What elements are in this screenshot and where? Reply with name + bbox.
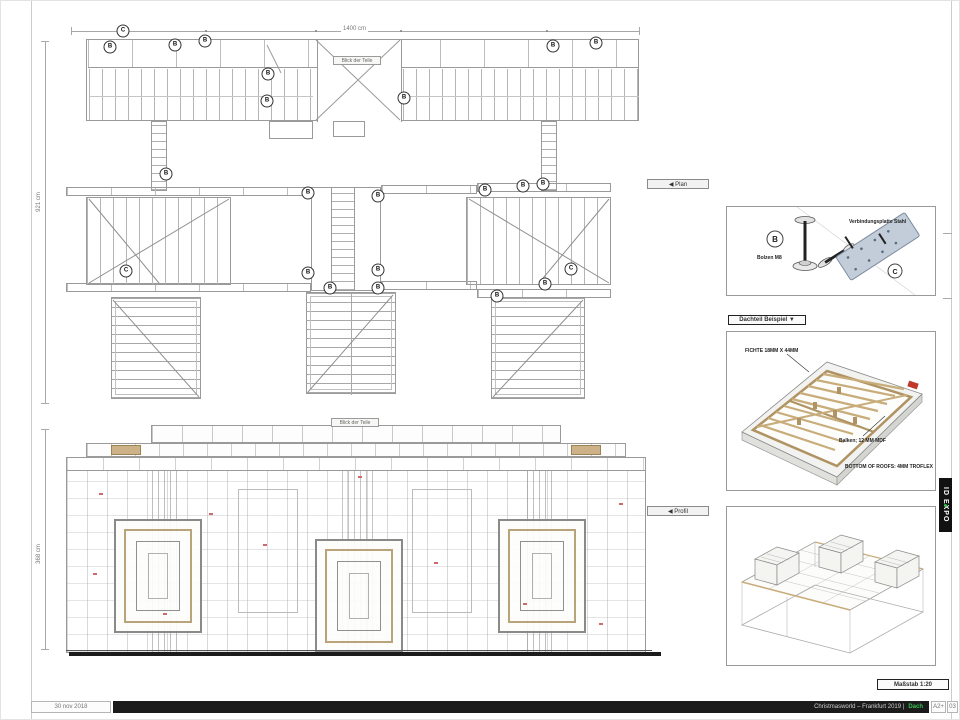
red-mark (619, 503, 623, 505)
plan-panel-right (466, 197, 611, 285)
marker-c: C (892, 269, 897, 276)
plan-strip (381, 281, 477, 290)
margin-tick (943, 298, 952, 299)
plan-width-dimension: 1400 cm (341, 26, 368, 32)
red-mark (263, 544, 267, 546)
dim-dot (546, 30, 548, 32)
marker-b: B (772, 235, 778, 244)
red-mark (209, 513, 213, 515)
fastener-drawing: B Bolzen M8 Verbindun (727, 207, 935, 295)
profile-wood-block (571, 445, 601, 455)
plan-label-chip[interactable]: ◀ Plan (647, 179, 709, 189)
beam-label: Balken; 12 MM MDF (839, 438, 886, 444)
sheet-margin-right (951, 1, 952, 720)
plan-view: 1400 cm 921 cm (1, 1, 721, 411)
plan-cross-bay (317, 40, 402, 122)
joist-label: FICHTE 18MM X 44MM (745, 348, 798, 354)
red-mark (434, 562, 438, 564)
plate-label: Verbindungsplatte Stahl (849, 219, 907, 225)
profile-height-dimension: 368 cm (36, 542, 42, 566)
plan-ladder-left (151, 121, 167, 191)
plan-dim-line-left (45, 41, 46, 403)
plan-stair-right (491, 297, 585, 399)
profile-band (66, 457, 646, 471)
footer-sheet-name: Dach (908, 704, 923, 710)
plan-tab-box (333, 121, 365, 137)
plan-band-midline (403, 96, 639, 97)
dim-tick (639, 27, 640, 35)
plan-top-band (86, 39, 639, 121)
footer-title: Christmasworld – Frankfurt 2019 | (814, 704, 904, 710)
plan-center-ladder (331, 187, 355, 291)
scale-chip[interactable]: Maßstab 1:20 (877, 679, 949, 690)
roof-bottom-label: BOTTOM OF ROOFS: 4MM TROFLEX (845, 464, 934, 470)
roof-detail-drawing: FICHTE 18MM X 44MM Balken; 12 MM MDF BOT… (727, 332, 935, 490)
plan-stair-middle (306, 292, 396, 394)
profile-wood-block (111, 445, 141, 455)
profile-tower-left (114, 519, 202, 633)
margin-tick (943, 233, 952, 234)
dim-tick (41, 649, 49, 650)
overview-panel (726, 506, 936, 666)
plan-center-column (311, 187, 381, 291)
dim-dot (315, 30, 317, 32)
profile-tower-right (498, 519, 586, 633)
drawing-sheet: 1400 cm 921 cm (0, 0, 960, 720)
red-mark (93, 573, 97, 575)
roof-detail-header[interactable]: Dachteil Beispiel ▼ (728, 315, 806, 325)
ground-hairline (66, 650, 652, 651)
dim-tick (41, 429, 49, 430)
profile-cornice-top (151, 425, 561, 443)
profile-dim-line (45, 429, 46, 649)
facade-frame (238, 489, 298, 613)
profile-view: 368 cm (1, 411, 721, 671)
plan-stair-centerline (351, 293, 352, 395)
overview-drawing (727, 507, 935, 665)
plan-tag: Blick der Teile (333, 56, 381, 65)
plan-ladder-right (541, 121, 557, 191)
brand-dot-icon (944, 504, 947, 507)
profile-cornice-mid (86, 443, 626, 457)
dim-dot (400, 30, 402, 32)
red-mark (99, 493, 103, 495)
footer-title-bar: Christmasworld – Frankfurt 2019 | Dach (113, 701, 929, 713)
plan-strip (66, 187, 311, 196)
bolt-label: Bolzen M8 (757, 255, 782, 261)
red-mark (523, 603, 527, 605)
plan-strip (477, 183, 611, 192)
ground-line (69, 652, 661, 656)
dim-tick (71, 27, 72, 35)
roof-detail-panel: FICHTE 18MM X 44MM Balken; 12 MM MDF BOT… (726, 331, 936, 491)
dim-tick (41, 403, 49, 404)
profile-tag: Blick der Teile (331, 418, 379, 427)
profile-tower-middle (315, 539, 403, 653)
red-mark (163, 613, 167, 615)
fastener-detail-panel: B Bolzen M8 Verbindun (726, 206, 936, 296)
plan-stair-left (111, 297, 201, 399)
plan-panel-left (86, 197, 231, 285)
plan-top-band-studs-left (89, 69, 313, 120)
brand-tab[interactable]: ID EXPO (939, 478, 952, 532)
format-box: A2+ (931, 701, 946, 713)
date-box: 30 nov 2018 (31, 701, 111, 713)
red-mark (599, 623, 603, 625)
red-mark (358, 476, 362, 478)
dim-tick (41, 41, 49, 42)
plan-band-midline (89, 96, 313, 97)
facade-frame (412, 489, 472, 613)
plan-top-band-studs-right (403, 69, 639, 120)
dim-dot (205, 30, 207, 32)
profile-label-chip[interactable]: ◀ Profil (647, 506, 709, 516)
plan-height-dimension: 921 cm (36, 190, 42, 214)
plan-tab-box (269, 121, 313, 139)
plan-strip (381, 185, 477, 194)
page-number-box: 03 (947, 701, 958, 713)
